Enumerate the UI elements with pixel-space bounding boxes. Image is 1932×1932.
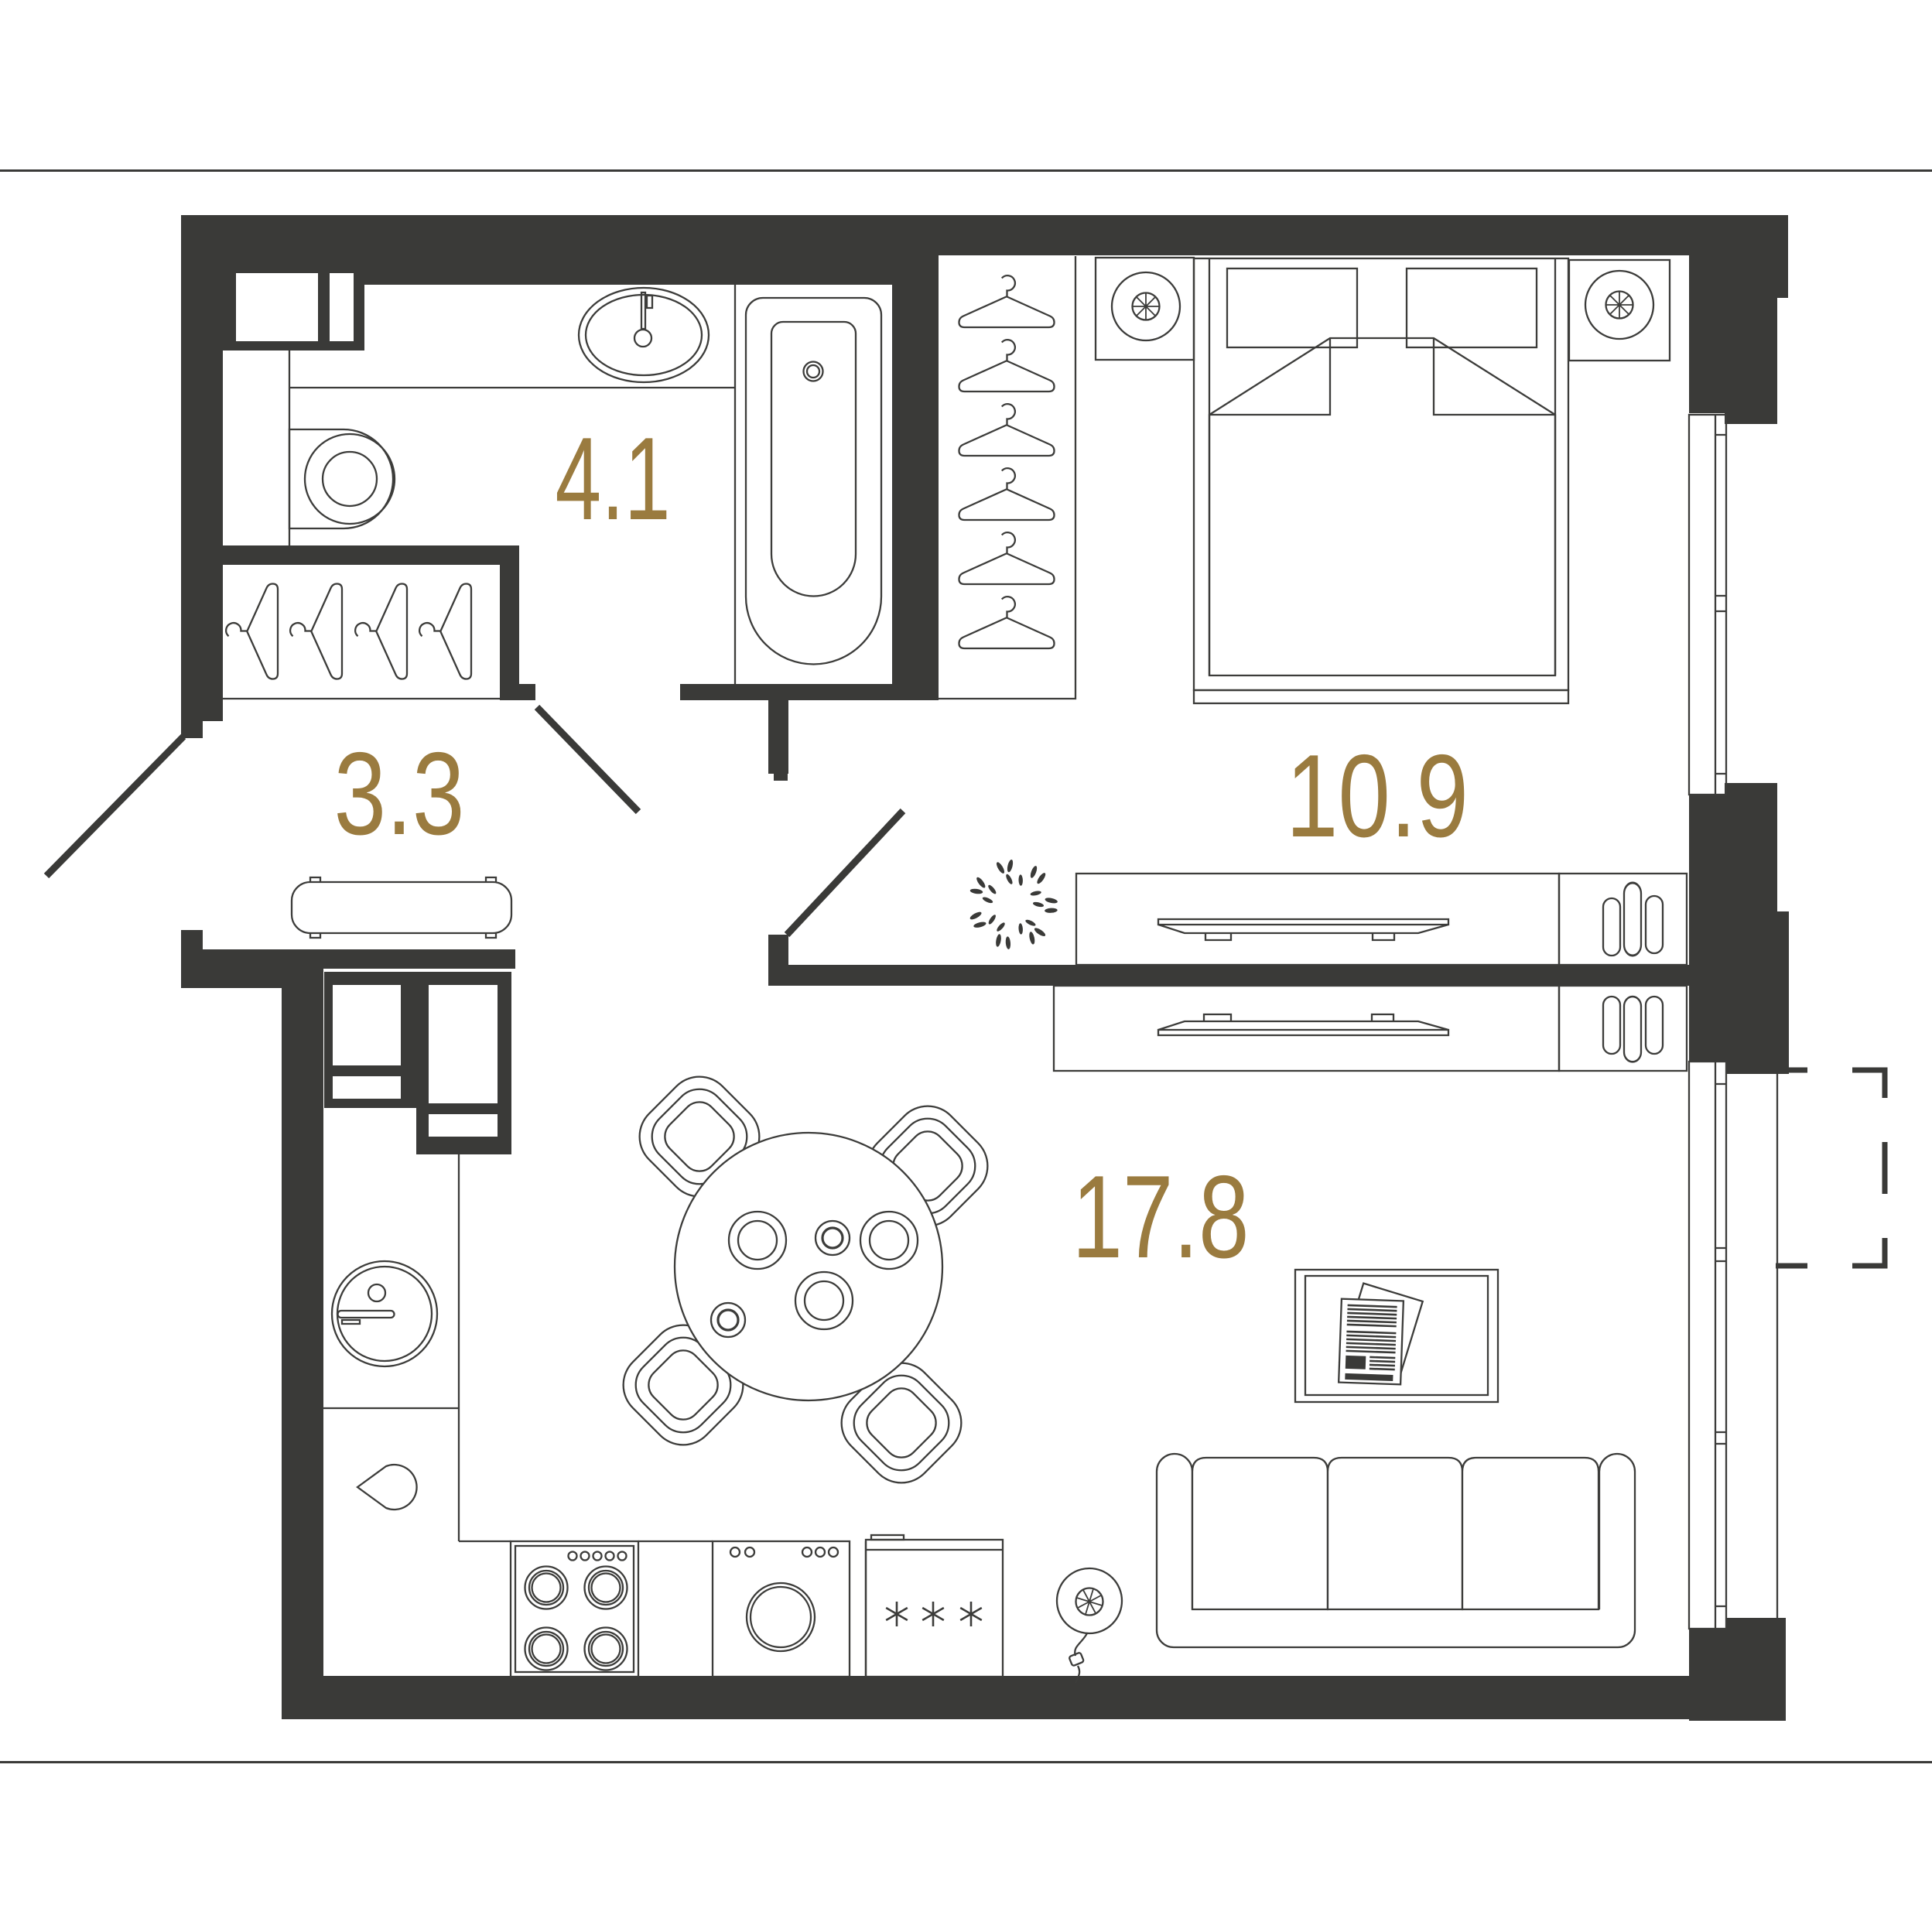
svg-text:4.1: 4.1 [556,413,671,545]
svg-text:3.3: 3.3 [334,728,465,860]
svg-text:10.9: 10.9 [1286,730,1469,862]
svg-text:17.8: 17.8 [1072,1151,1250,1283]
